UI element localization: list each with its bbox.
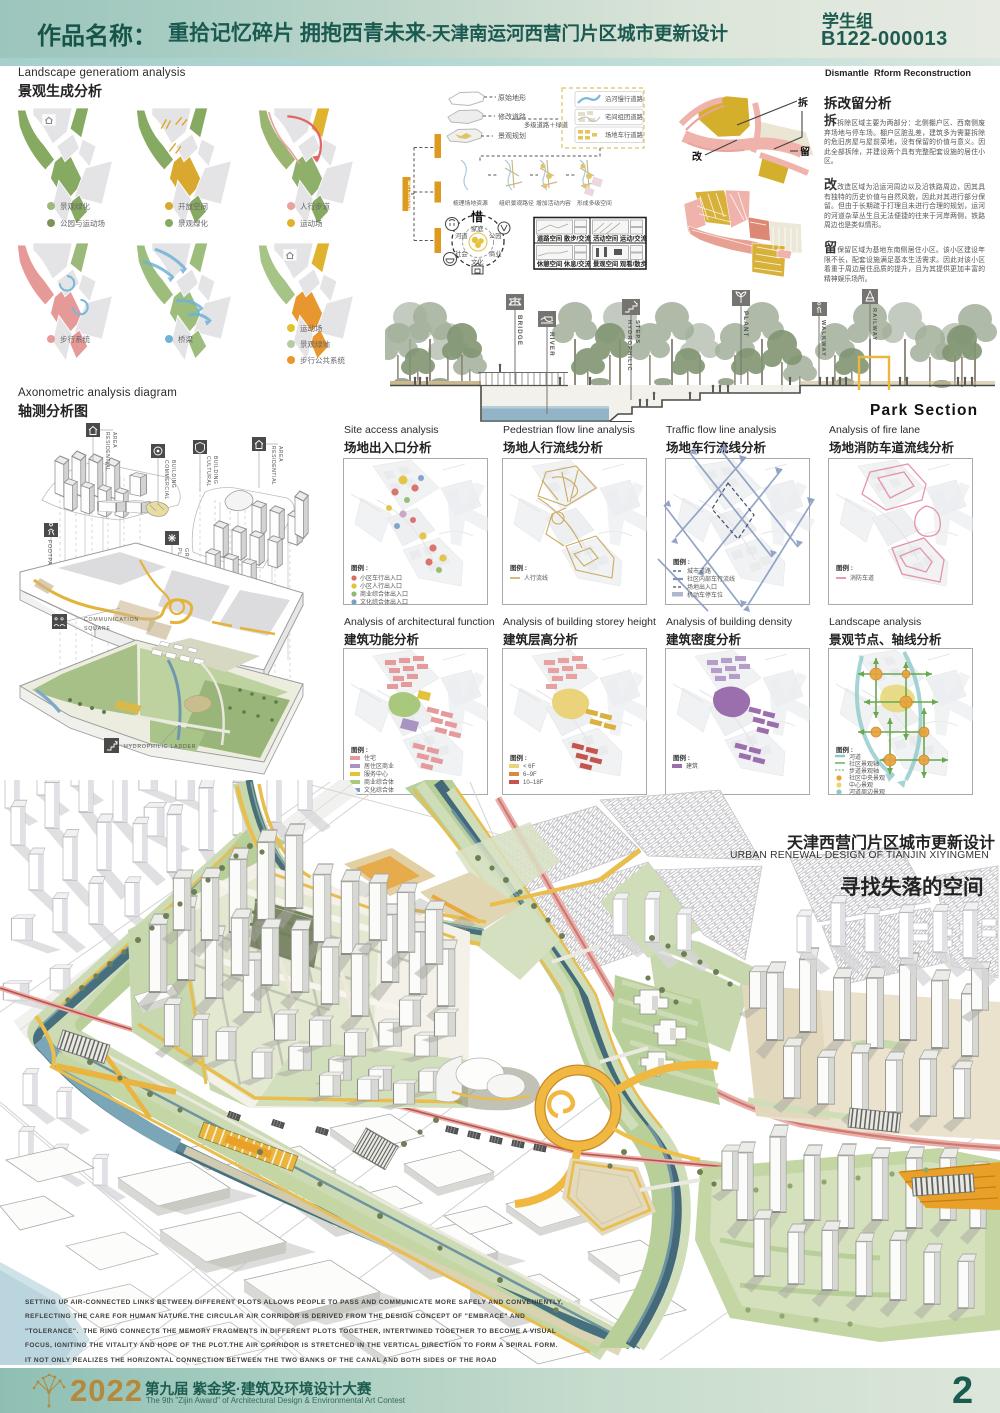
svg-text:CULTURAL: CULTURAL [205, 456, 211, 487]
svg-text:文化综合体出入口: 文化综合体出入口 [360, 598, 408, 605]
svg-text:运动场: 运动场 [300, 218, 323, 228]
svg-text:人行流线: 人行流线 [524, 574, 548, 582]
svg-text:公园: 公园 [489, 232, 502, 240]
svg-text:桥梁: 桥梁 [178, 334, 193, 344]
svg-text:WALKWAY: WALKWAY [820, 320, 826, 357]
svg-text:小区车行出入口: 小区车行出入口 [360, 574, 402, 582]
svg-text:河道: 河道 [455, 231, 468, 240]
svg-text:人行步道: 人行步道 [300, 201, 330, 211]
svg-text:COMMERCIAL: COMMERCIAL [163, 460, 169, 500]
svg-text:建筑: 建筑 [686, 762, 698, 770]
svg-text:增加活动内容: 增加活动内容 [536, 199, 571, 207]
svg-text:沿河慢行道路: 沿河慢行道路 [605, 94, 643, 103]
svg-text:图例 :: 图例 : [836, 563, 853, 572]
svg-text:RIVER: RIVER [548, 332, 555, 357]
svg-text:景观空间 观看/散步: 景观空间 观看/散步 [593, 259, 648, 268]
svg-text:HYDROPHILIC LADDER: HYDROPHILIC LADDER [124, 744, 196, 750]
svg-text:STEPS: STEPS [634, 320, 640, 344]
svg-text:< 6F: < 6F [523, 764, 536, 770]
svg-text:HYDROPHILIC: HYDROPHILIC [626, 320, 632, 372]
svg-text:形成多级空间: 形成多级空间 [577, 199, 612, 207]
svg-text:景观绿地: 景观绿地 [300, 339, 330, 349]
svg-text:留: 留 [800, 145, 810, 158]
svg-text:RAILWAY: RAILWAY [871, 308, 877, 341]
svg-text:BUILDING: BUILDING [212, 456, 218, 484]
svg-text:拆: 拆 [798, 96, 808, 109]
svg-text:图例 :: 图例 : [510, 563, 527, 572]
svg-text:文化: 文化 [471, 257, 484, 266]
svg-text:图例 :: 图例 : [351, 563, 368, 572]
svg-text:社会: 社会 [455, 249, 468, 258]
svg-text:居住区商业: 居住区商业 [364, 762, 394, 770]
svg-text:惜: 惜 [470, 209, 483, 224]
svg-text:河道: 河道 [849, 753, 861, 761]
svg-text:步道景观轴: 步道景观轴 [849, 767, 879, 775]
svg-text:图例 :: 图例 : [673, 753, 690, 762]
svg-text:原始地形: 原始地形 [498, 93, 526, 102]
svg-text:步行公共系统: 步行公共系统 [300, 355, 345, 365]
svg-text:修改道路: 修改道路 [498, 112, 526, 121]
svg-text:城市道路: 城市道路 [687, 567, 711, 575]
svg-text:活动空间 运动/交流: 活动空间 运动/交流 [593, 234, 648, 243]
svg-text:COMMUNICATION: COMMUNICATION [84, 617, 139, 623]
svg-text:步行系统: 步行系统 [60, 334, 90, 344]
svg-text:梳理场地资源: 梳理场地资源 [453, 199, 488, 207]
svg-text:运动场: 运动场 [300, 323, 323, 333]
svg-text:慢行系统构建: 慢行系统构建 [407, 180, 415, 214]
svg-text:休憩空间 休息/交流: 休憩空间 休息/交流 [536, 259, 592, 268]
svg-text:6–9F: 6–9F [523, 772, 537, 778]
svg-text:BUILDING: BUILDING [170, 460, 176, 488]
svg-text:服务中心: 服务中心 [364, 770, 388, 778]
svg-text:AREA: AREA [111, 432, 117, 448]
svg-text:场地出入口: 场地出入口 [687, 583, 717, 591]
svg-text:公园与运动场: 公园与运动场 [60, 218, 105, 228]
svg-text:AREA: AREA [277, 446, 283, 462]
svg-text:宅间组团道路: 宅间组团道路 [605, 112, 643, 121]
svg-text:RESIDENTIAL: RESIDENTIAL [104, 432, 110, 471]
svg-text:小区人行出入口: 小区人行出入口 [360, 582, 402, 590]
svg-text:景观绿化: 景观绿化 [178, 218, 208, 228]
svg-text:消防车道: 消防车道 [850, 574, 874, 582]
svg-text:景观规划: 景观规划 [498, 131, 526, 140]
svg-text:社区内部车行流线: 社区内部车行流线 [687, 575, 735, 583]
svg-text:图例 :: 图例 : [673, 557, 690, 566]
svg-text:场地车行道路: 场地车行道路 [605, 130, 643, 139]
svg-text:机动车停车位: 机动车停车位 [687, 591, 723, 599]
svg-text:BRIDGE: BRIDGE [516, 315, 523, 346]
svg-text:改: 改 [692, 150, 703, 163]
svg-text:家庭: 家庭 [471, 224, 484, 233]
svg-text:道路空间 散步/交流: 道路空间 散步/交流 [537, 234, 592, 243]
svg-text:组织景观路径: 组织景观路径 [499, 199, 534, 207]
svg-text:SQUARE: SQUARE [84, 626, 111, 632]
svg-text:PLANT: PLANT [742, 311, 749, 338]
svg-text:图例 :: 图例 : [836, 745, 853, 754]
svg-text:住宅: 住宅 [364, 754, 376, 762]
svg-text:社区景观轴: 社区景观轴 [849, 760, 879, 768]
svg-text:商业: 商业 [489, 249, 502, 258]
svg-text:RESIDENTIAL: RESIDENTIAL [270, 446, 276, 485]
svg-text:图例 :: 图例 : [510, 753, 527, 762]
svg-text:商业综合体出入口: 商业综合体出入口 [360, 590, 408, 598]
svg-text:景观绿化: 景观绿化 [60, 201, 90, 211]
svg-text:图例 :: 图例 : [351, 745, 368, 754]
svg-text:开放空间: 开放空间 [178, 201, 208, 211]
